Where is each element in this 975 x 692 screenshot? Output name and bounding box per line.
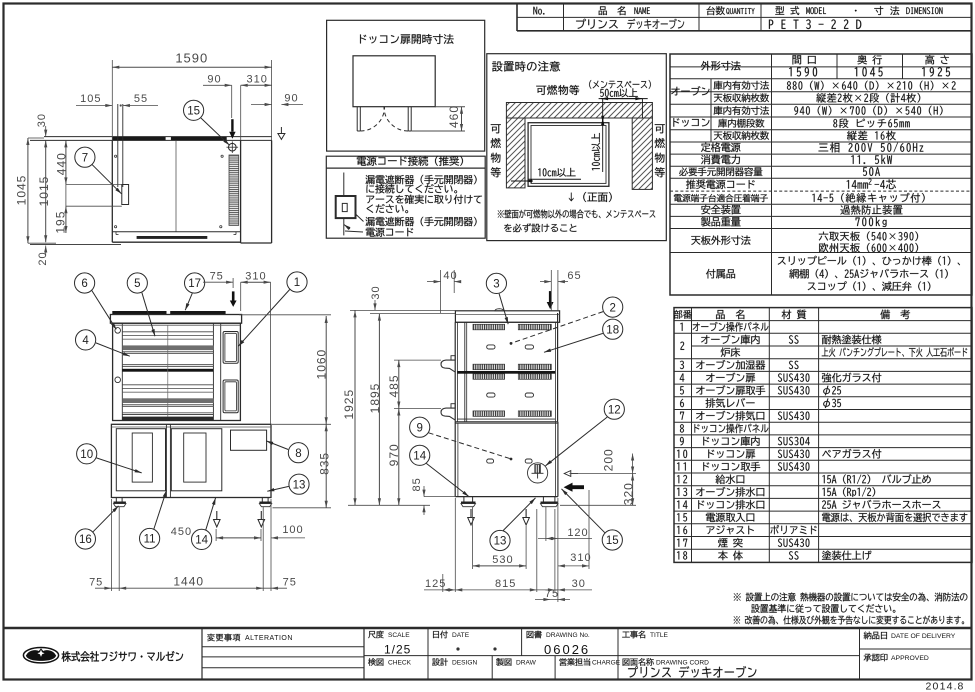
svg-text:120: 120 [567, 527, 588, 539]
svg-text:1045: 1045 [15, 175, 29, 206]
svg-text:17: 17 [188, 278, 201, 290]
svg-text:1060: 1060 [315, 349, 329, 380]
svg-text:75: 75 [283, 577, 297, 589]
svg-text:125: 125 [425, 578, 446, 590]
svg-text:DRAWING No.: DRAWING No. [546, 632, 590, 639]
svg-text:55: 55 [134, 93, 148, 105]
svg-text:450: 450 [171, 526, 192, 538]
svg-text:1440: 1440 [173, 575, 204, 589]
svg-text:11: 11 [144, 534, 156, 546]
svg-text:15: 15 [187, 106, 200, 118]
svg-text:DRAW: DRAW [516, 660, 537, 667]
svg-text:CHECK: CHECK [388, 660, 412, 667]
svg-text:310: 310 [247, 73, 268, 85]
svg-text:320: 320 [621, 482, 635, 505]
svg-text:1590: 1590 [175, 51, 208, 66]
svg-text:105: 105 [80, 93, 101, 105]
svg-text:1/25: 1/25 [384, 643, 411, 657]
svg-text:14: 14 [413, 451, 426, 463]
svg-text:90: 90 [207, 73, 221, 85]
svg-text:TITLE: TITLE [650, 632, 669, 639]
svg-text:310: 310 [570, 552, 591, 564]
svg-text:530: 530 [492, 554, 513, 566]
svg-text:1: 1 [294, 277, 300, 289]
svg-text:18: 18 [606, 324, 619, 336]
svg-text:6: 6 [81, 278, 87, 290]
svg-text:30: 30 [370, 285, 382, 299]
svg-text:815: 815 [495, 578, 516, 590]
svg-text:835: 835 [318, 452, 332, 475]
svg-text:15: 15 [606, 535, 619, 547]
svg-text:CHARGE: CHARGE [592, 660, 621, 667]
svg-text:06026: 06026 [544, 642, 590, 657]
svg-text:3: 3 [493, 279, 499, 291]
svg-text:310: 310 [245, 271, 266, 283]
svg-text:30: 30 [36, 113, 48, 127]
svg-text:10: 10 [80, 449, 93, 461]
svg-text:970: 970 [387, 443, 401, 466]
svg-text:195: 195 [54, 211, 68, 234]
svg-text:30: 30 [572, 578, 586, 590]
svg-text:20: 20 [37, 251, 49, 265]
svg-text:DRAWING CORD: DRAWING CORD [656, 660, 709, 667]
svg-text:16: 16 [79, 534, 92, 546]
svg-text:40: 40 [443, 270, 457, 282]
svg-text:SCALE: SCALE [388, 632, 410, 639]
svg-text:75: 75 [545, 588, 559, 600]
svg-text:75: 75 [210, 271, 224, 283]
svg-text:5: 5 [134, 278, 140, 290]
svg-text:DATE OF DELIVERY: DATE OF DELIVERY [891, 633, 956, 640]
svg-text:2014.: 2014. [926, 681, 958, 692]
svg-text:485: 485 [387, 374, 401, 397]
svg-text:1925: 1925 [342, 389, 356, 420]
svg-text:1015: 1015 [37, 176, 51, 207]
svg-text:ALTERATION: ALTERATION [245, 635, 293, 642]
svg-text:1895: 1895 [368, 383, 382, 414]
svg-text:7: 7 [82, 152, 88, 164]
svg-text:200: 200 [601, 448, 615, 471]
svg-text:14: 14 [195, 535, 208, 547]
svg-text:12: 12 [608, 404, 621, 416]
svg-text:13: 13 [293, 479, 306, 491]
svg-text:8: 8 [958, 681, 964, 692]
svg-text:85: 85 [411, 477, 423, 491]
svg-text:DESIGN: DESIGN [452, 660, 478, 667]
svg-text:4: 4 [82, 335, 89, 347]
svg-text:13: 13 [494, 536, 507, 548]
svg-text:440: 440 [55, 152, 69, 175]
svg-text:65: 65 [567, 270, 581, 282]
svg-text:90: 90 [284, 93, 298, 105]
svg-text:9: 9 [416, 422, 422, 434]
svg-text:100: 100 [282, 524, 303, 536]
svg-text:DATE: DATE [452, 632, 470, 639]
svg-text:75: 75 [89, 577, 103, 589]
svg-text:8: 8 [295, 448, 301, 460]
svg-text:APPROVED: APPROVED [891, 655, 929, 662]
svg-text:460: 460 [447, 105, 461, 128]
svg-text:2: 2 [609, 302, 615, 314]
